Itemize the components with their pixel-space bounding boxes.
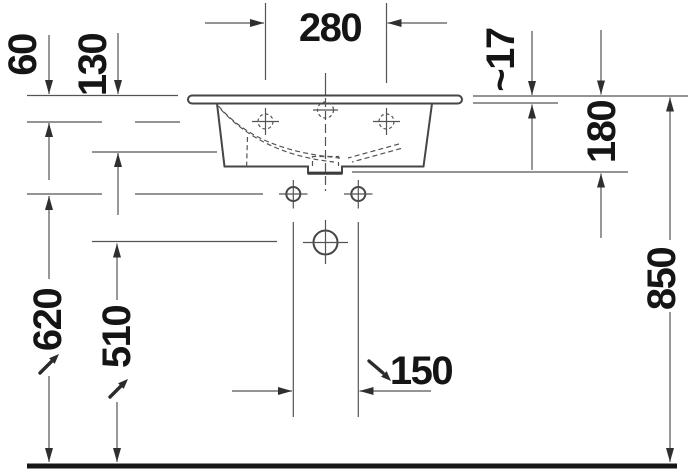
tap-hole-left <box>252 108 279 135</box>
label-60: 60 <box>1 34 45 76</box>
hidden-bowl-curve-2 <box>221 110 334 163</box>
dimension-labels: 280 60 130 ~17 180 850 620 510 150 <box>1 6 684 393</box>
tap-hole-right <box>373 108 400 135</box>
label-510: 510 <box>95 306 139 368</box>
leader-arrow-620-shaft <box>40 361 52 373</box>
leader-arrow-510-shaft <box>110 386 121 397</box>
leader-arrow-150-shaft <box>369 361 383 373</box>
drain-outlet <box>303 220 348 264</box>
hidden-bowl-curve-1 <box>219 106 341 158</box>
washbasin-dimension-drawing: 280 60 130 ~17 180 850 620 510 150 <box>0 0 700 473</box>
technical-drawing: 280 60 130 ~17 180 850 620 510 150 <box>0 0 700 473</box>
basin-front-wall <box>217 104 225 167</box>
label-150: 150 <box>390 349 452 393</box>
label-280: 280 <box>299 6 361 50</box>
label-17: ~17 <box>479 28 523 92</box>
label-620: 620 <box>26 289 70 351</box>
floor-line <box>27 464 677 469</box>
label-130: 130 <box>71 34 115 96</box>
label-180: 180 <box>580 101 624 163</box>
hidden-front-edge <box>247 137 248 169</box>
leader-arrows <box>40 354 391 397</box>
dimension-lines <box>49 23 670 462</box>
basin-back-wall <box>424 104 433 167</box>
washbasin <box>188 96 462 192</box>
label-850: 850 <box>640 248 684 310</box>
